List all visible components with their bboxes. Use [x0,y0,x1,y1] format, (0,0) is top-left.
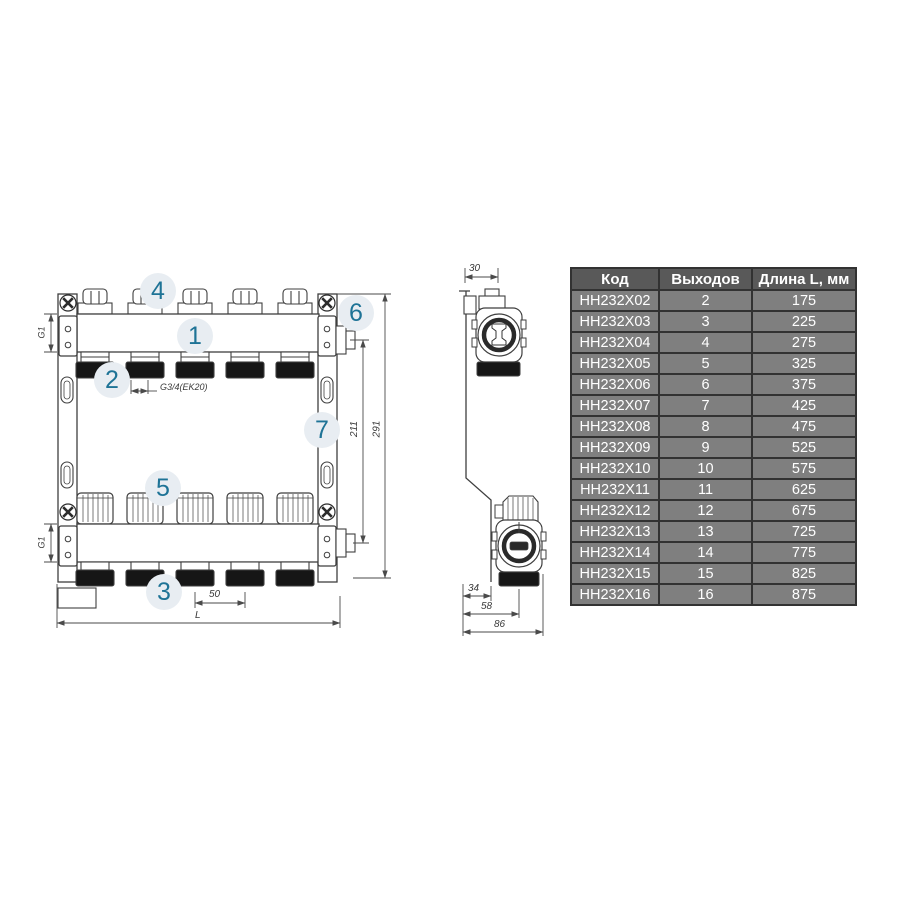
table-row: HH232X1313725 [571,521,856,542]
col-header-code: Код [571,268,659,290]
table-row: HH232X1010575 [571,458,856,479]
cell-length: 475 [752,416,856,437]
col-header-outputs: Выходов [659,268,752,290]
table-row: HH232X1111625 [571,479,856,500]
cell-outputs: 16 [659,584,752,605]
callout-7-mounting-bracket: 7 [304,412,340,448]
cell-code: HH232X16 [571,584,659,605]
table-header-row: Код Выходов Длина L, мм [571,268,856,290]
cell-length: 325 [752,353,856,374]
callout-7-label: 7 [315,418,329,443]
cell-length: 875 [752,584,856,605]
cell-code: HH232X11 [571,479,659,500]
dim-g34-ek20: G3/4(EK20) [160,383,208,392]
cell-outputs: 5 [659,353,752,374]
cell-length: 275 [752,332,856,353]
callout-4-label: 4 [151,279,165,304]
cell-length: 775 [752,542,856,563]
cell-outputs: 9 [659,437,752,458]
table-row: HH232X044275 [571,332,856,353]
cell-code: HH232X12 [571,500,659,521]
dim-50: 50 [209,590,220,600]
table-row: HH232X055325 [571,353,856,374]
cell-outputs: 14 [659,542,752,563]
dim-34: 34 [468,584,479,594]
table-row: HH232X088475 [571,416,856,437]
cell-length: 525 [752,437,856,458]
cell-code: HH232X02 [571,290,659,311]
cell-outputs: 13 [659,521,752,542]
table-row: HH232X066375 [571,374,856,395]
cell-outputs: 2 [659,290,752,311]
dim-g1-bottom: G1 [38,536,47,548]
dim-30: 30 [469,264,480,274]
cell-code: HH232X05 [571,353,659,374]
callout-4-air-vent-cap: 4 [140,273,176,309]
table-row: HH232X022175 [571,290,856,311]
callout-1-manifold-body: 1 [177,318,213,354]
cell-length: 575 [752,458,856,479]
cell-outputs: 4 [659,332,752,353]
cell-length: 425 [752,395,856,416]
callout-3-label: 3 [157,580,171,605]
manifold-drawing-page: 1 2 3 4 5 6 7 G1 G1 G3/4(EK20) 50 L 211 … [0,0,900,900]
callout-6-end-union: 6 [338,295,374,331]
callout-6-label: 6 [349,301,363,326]
table-row: HH232X033225 [571,311,856,332]
table-row: HH232X1515825 [571,563,856,584]
callout-2-outlet: 2 [94,362,130,398]
table-row: HH232X1414775 [571,542,856,563]
cell-code: HH232X09 [571,437,659,458]
callout-1-label: 1 [188,324,202,349]
cell-length: 225 [752,311,856,332]
side-view [459,289,546,586]
cell-outputs: 12 [659,500,752,521]
cell-outputs: 15 [659,563,752,584]
cell-length: 175 [752,290,856,311]
cell-code: HH232X04 [571,332,659,353]
cell-outputs: 11 [659,479,752,500]
dim-g1-top: G1 [38,326,47,338]
cell-code: HH232X13 [571,521,659,542]
table-row: HH232X099525 [571,437,856,458]
cell-outputs: 6 [659,374,752,395]
table-row: HH232X1616875 [571,584,856,605]
callout-2-label: 2 [105,368,119,393]
cell-length: 375 [752,374,856,395]
cell-length: 675 [752,500,856,521]
callout-3-bottom-outlet: 3 [146,574,182,610]
dim-58: 58 [481,602,492,612]
table-row: HH232X077425 [571,395,856,416]
cell-outputs: 7 [659,395,752,416]
dim-211: 211 [350,421,360,437]
table-row: HH232X1212675 [571,500,856,521]
cell-code: HH232X08 [571,416,659,437]
cell-code: HH232X14 [571,542,659,563]
dim-length-L: L [195,611,201,621]
callout-5-label: 5 [156,476,170,501]
cell-code: HH232X15 [571,563,659,584]
dim-86: 86 [494,620,505,630]
dim-291: 291 [372,421,382,438]
cell-code: HH232X10 [571,458,659,479]
callout-5-valve-cap: 5 [145,470,181,506]
spec-table: Код Выходов Длина L, мм HH232X022175 HH2… [570,267,857,606]
cell-outputs: 10 [659,458,752,479]
cell-outputs: 3 [659,311,752,332]
cell-outputs: 8 [659,416,752,437]
cell-length: 725 [752,521,856,542]
cell-code: HH232X03 [571,311,659,332]
cell-length: 825 [752,563,856,584]
cell-code: HH232X07 [571,395,659,416]
cell-code: HH232X06 [571,374,659,395]
cell-length: 625 [752,479,856,500]
col-header-length: Длина L, мм [752,268,856,290]
